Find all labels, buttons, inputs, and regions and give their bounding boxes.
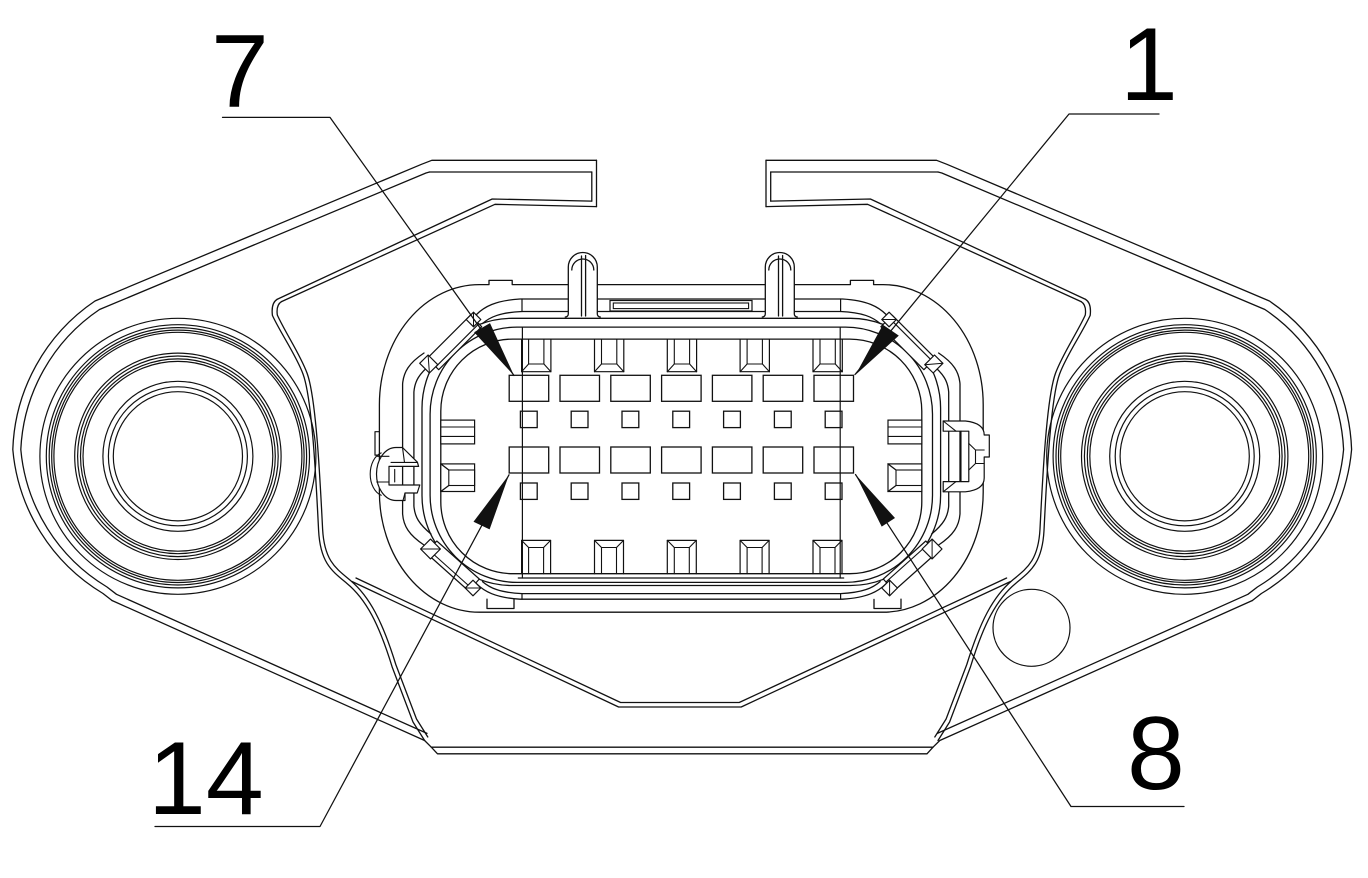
svg-text:8: 8: [1127, 696, 1185, 812]
svg-text:7: 7: [211, 14, 269, 130]
svg-text:1: 1: [1120, 7, 1178, 123]
svg-text:14: 14: [148, 721, 264, 837]
